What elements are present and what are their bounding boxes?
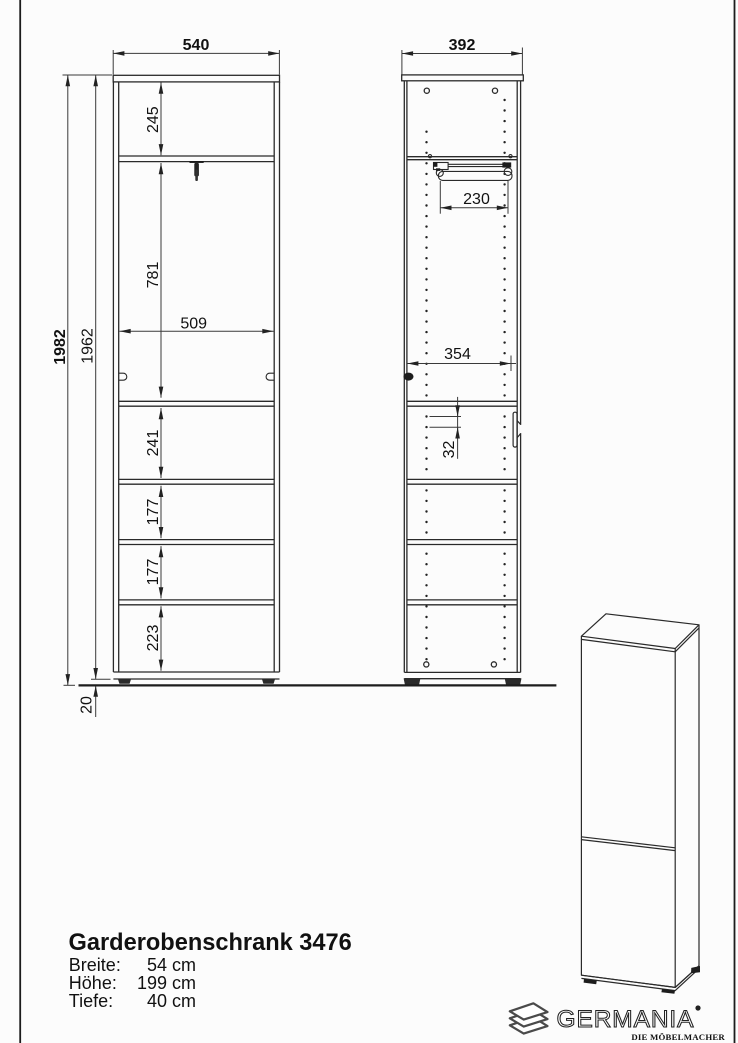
svg-text:540: 540 [183, 37, 210, 54]
svg-text:392: 392 [449, 37, 476, 54]
svg-text:354: 354 [444, 346, 471, 363]
svg-text:509: 509 [180, 315, 207, 332]
svg-text:223: 223 [145, 625, 162, 652]
svg-text:GERMANIA: GERMANIA [557, 1006, 695, 1033]
svg-text:32: 32 [441, 441, 458, 459]
svg-text:1982: 1982 [52, 329, 69, 365]
svg-text:177: 177 [145, 499, 162, 526]
svg-text:1962: 1962 [80, 328, 97, 364]
svg-text:230: 230 [463, 191, 490, 208]
svg-text:177: 177 [145, 559, 162, 586]
svg-text:241: 241 [145, 430, 162, 457]
svg-text:245: 245 [145, 106, 162, 133]
svg-text:781: 781 [145, 262, 162, 289]
svg-text:DIE MÖBELMACHER: DIE MÖBELMACHER [631, 1032, 725, 1042]
svg-text:20: 20 [79, 696, 96, 714]
